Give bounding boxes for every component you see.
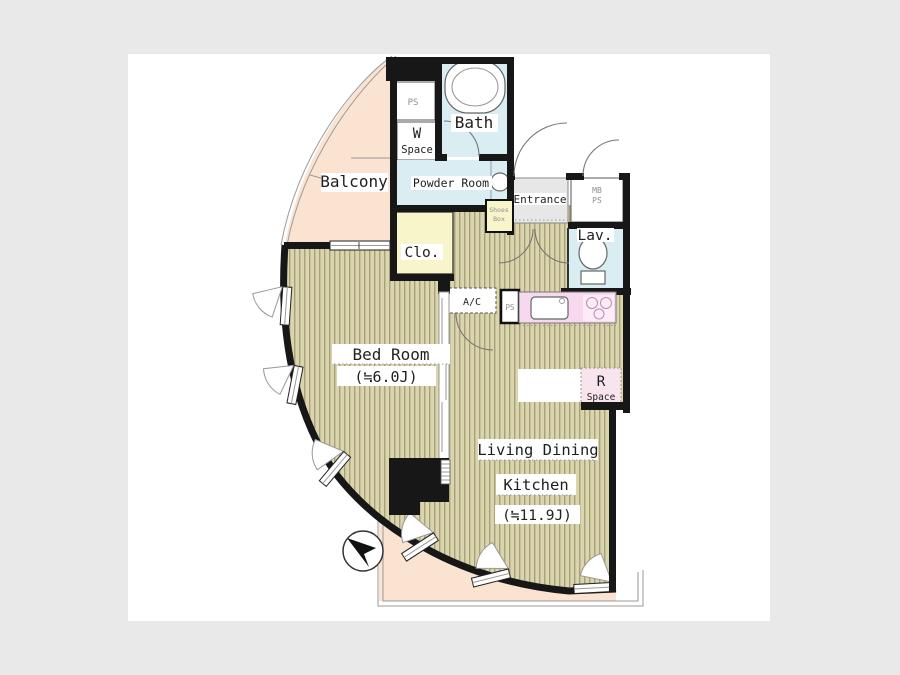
sliding-partition [439,292,449,460]
ps-top-label: PS [408,98,419,108]
bed-room-label: Bed Room [352,345,429,364]
floor-plan-drawing: Balcony PS Bath W Space Powder Room Shoe… [128,54,770,621]
closet-room [392,212,453,274]
balcony-label: Balcony [320,172,388,191]
w-space-label-w: W [413,126,422,142]
kitchen-sink-icon [531,297,568,319]
page-background: Balcony PS Bath W Space Powder Room Shoe… [0,0,900,675]
mb-label: MB [592,186,602,195]
toilet-icon [579,237,607,284]
ldk-label-2: Kitchen [503,476,568,494]
w-space-label-space: Space [401,144,433,156]
bathtub-icon [445,61,505,113]
lav-label: Lav. [578,228,613,244]
stove-icon [583,295,614,321]
compass-icon [343,531,383,571]
kitchen-ps-label: PS [505,303,515,312]
shoes-box-label-2: Box [493,215,505,223]
r-space-label-space: Space [587,392,616,403]
bath-room [438,57,513,157]
window-1 [251,285,292,326]
bedroom-window [330,241,390,250]
ldk-size-label: (≒11.9J) [502,508,572,524]
powder-room-label: Powder Room [413,176,489,190]
balcony-upper [281,56,396,245]
entrance-door-arc [514,123,567,176]
mb-ps-door-arc [583,140,619,176]
window-2 [258,360,303,405]
mb-ps-label: PS [592,196,602,205]
floor-plan: Balcony PS Bath W Space Powder Room Shoe… [128,54,770,621]
r-space-label-r: R [597,374,606,390]
bath-label: Bath [455,113,494,132]
entrance-label: Entrance [514,193,567,206]
bed-room-size-label: (≒6.0J) [354,368,417,386]
ldk-label-1: Living Dining [477,441,598,459]
clo-label: Clo. [405,245,440,261]
kitchen-area [501,290,616,326]
ac-label: A/C [463,297,481,308]
shoes-box-label-1: Shoes [489,206,509,214]
basin-icon [491,173,509,191]
